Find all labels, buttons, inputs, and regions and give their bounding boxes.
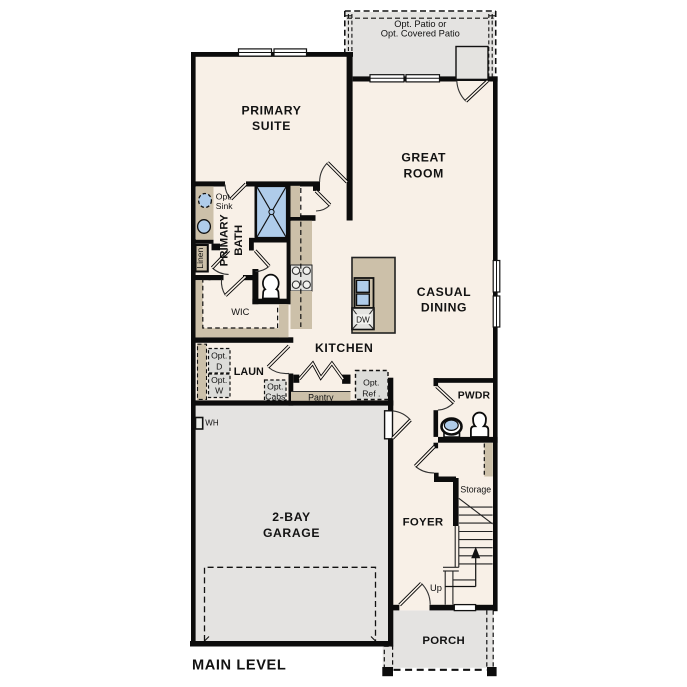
svg-text:PORCH: PORCH <box>422 635 465 647</box>
svg-text:W: W <box>215 386 224 396</box>
svg-text:KITCHEN: KITCHEN <box>315 341 373 355</box>
svg-text:ROOM: ROOM <box>404 166 444 180</box>
svg-text:D: D <box>216 361 222 371</box>
svg-text:DW: DW <box>356 315 370 324</box>
svg-text:WIC: WIC <box>231 307 249 317</box>
svg-text:Cabs: Cabs <box>265 391 285 401</box>
svg-text:GARAGE: GARAGE <box>263 526 320 540</box>
svg-text:Ref .: Ref . <box>362 388 380 398</box>
svg-text:SUITE: SUITE <box>252 119 291 133</box>
svg-text:FOYER: FOYER <box>403 517 444 529</box>
svg-text:MAIN LEVEL: MAIN LEVEL <box>192 658 286 674</box>
svg-text:Opt.: Opt. <box>216 191 232 201</box>
svg-text:PRIMARY: PRIMARY <box>218 214 230 267</box>
svg-text:Sink: Sink <box>216 201 233 211</box>
svg-text:Opt.: Opt. <box>211 351 227 361</box>
svg-text:Opt. Patio or: Opt. Patio or <box>394 19 446 29</box>
svg-text:PRIMARY: PRIMARY <box>242 104 302 118</box>
svg-text:LAUN: LAUN <box>234 366 264 378</box>
svg-text:Opt.: Opt. <box>363 378 379 388</box>
svg-text:Opt. Covered Patio: Opt. Covered Patio <box>381 28 460 38</box>
svg-text:Opt.: Opt. <box>211 375 227 385</box>
svg-text:Linen: Linen <box>195 247 205 268</box>
svg-text:Up: Up <box>430 583 442 593</box>
svg-text:Pantry: Pantry <box>308 392 334 402</box>
svg-text:Opt.: Opt. <box>267 382 283 392</box>
svg-text:CASUAL: CASUAL <box>417 285 471 299</box>
svg-text:PWDR: PWDR <box>458 390 491 401</box>
svg-text:2-BAY: 2-BAY <box>272 510 310 524</box>
svg-text:GREAT: GREAT <box>401 150 446 164</box>
svg-text:WH: WH <box>205 418 219 427</box>
svg-text:Storage: Storage <box>460 484 491 494</box>
svg-text:BATH: BATH <box>233 225 245 256</box>
svg-text:DINING: DINING <box>421 300 467 314</box>
